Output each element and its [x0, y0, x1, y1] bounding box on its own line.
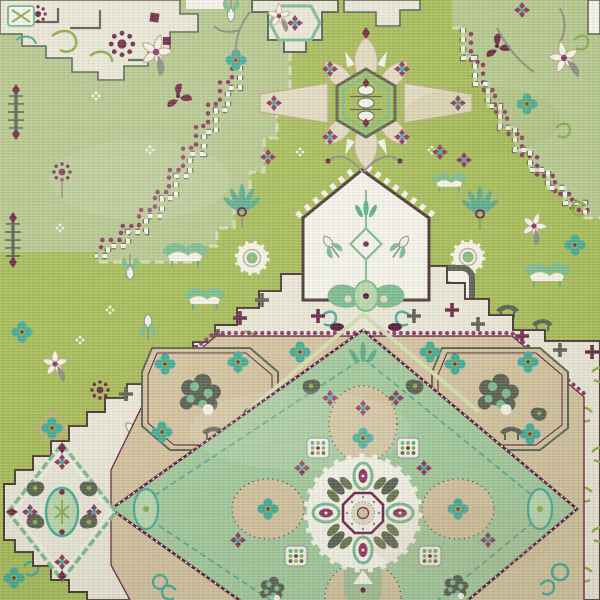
- corner-fragment: [186, 0, 224, 9]
- rug-photo: [0, 0, 600, 600]
- edge-fragment: [588, 0, 600, 34]
- rug-art: [0, 0, 600, 600]
- pendant-hex-core: [337, 69, 395, 137]
